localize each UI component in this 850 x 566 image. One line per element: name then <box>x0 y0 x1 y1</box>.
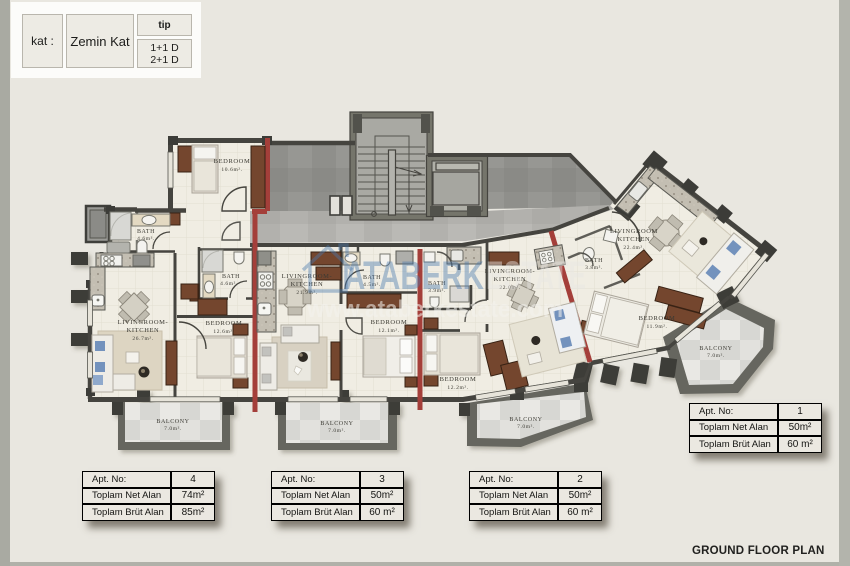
svg-text:BALCONY: BALCONY <box>699 346 732 352</box>
svg-text:12.1m².: 12.1m². <box>378 328 399 334</box>
svg-text:12.2m².: 12.2m². <box>447 385 468 391</box>
svg-text:ESTATE: ESTATE <box>486 254 586 298</box>
svg-text:7.0m².: 7.0m². <box>707 353 725 359</box>
svg-text:12.6m².: 12.6m². <box>213 329 234 335</box>
svg-text:KITCHEN: KITCHEN <box>291 281 324 288</box>
svg-text:BEDROOM: BEDROOM <box>639 315 676 322</box>
svg-text:KITCHEN: KITCHEN <box>618 236 651 243</box>
svg-text:BALCONY: BALCONY <box>156 419 189 425</box>
svg-text:LIVINGROOM-: LIVINGROOM- <box>118 319 169 326</box>
svg-text:10.6m².: 10.6m². <box>221 167 242 173</box>
svg-text:KITCHEN: KITCHEN <box>127 327 160 334</box>
svg-text:BALCONY: BALCONY <box>320 421 353 427</box>
svg-text:7.0m².: 7.0m². <box>328 428 346 434</box>
svg-text:BEDROOM: BEDROOM <box>214 158 251 165</box>
svg-text:BALCONY: BALCONY <box>509 417 542 423</box>
svg-text:www.ataberkestate.com: www.ataberkestate.com <box>306 296 563 323</box>
svg-text:26.7m².: 26.7m². <box>132 336 153 342</box>
svg-text:BATH: BATH <box>137 229 155 235</box>
svg-text:LIVINGROOM-: LIVINGROOM- <box>282 273 333 280</box>
svg-text:BATH: BATH <box>222 274 240 280</box>
svg-text:ATABERK: ATABERK <box>344 254 484 298</box>
svg-text:3.8m².: 3.8m². <box>585 265 603 271</box>
svg-text:22.4m².: 22.4m². <box>623 245 644 251</box>
svg-text:LIVINGROOM: LIVINGROOM <box>610 228 658 235</box>
svg-text:11.9m².: 11.9m². <box>647 324 668 330</box>
svg-text:4.6m².: 4.6m². <box>220 281 238 287</box>
svg-text:BEDROOM: BEDROOM <box>206 320 243 327</box>
svg-text:7.0m².: 7.0m². <box>164 426 182 432</box>
svg-text:7.0m².: 7.0m². <box>517 424 535 430</box>
svg-text:BEDROOM: BEDROOM <box>440 376 477 383</box>
svg-text:BATH: BATH <box>585 258 603 264</box>
svg-text:4.6m².: 4.6m². <box>137 236 155 242</box>
